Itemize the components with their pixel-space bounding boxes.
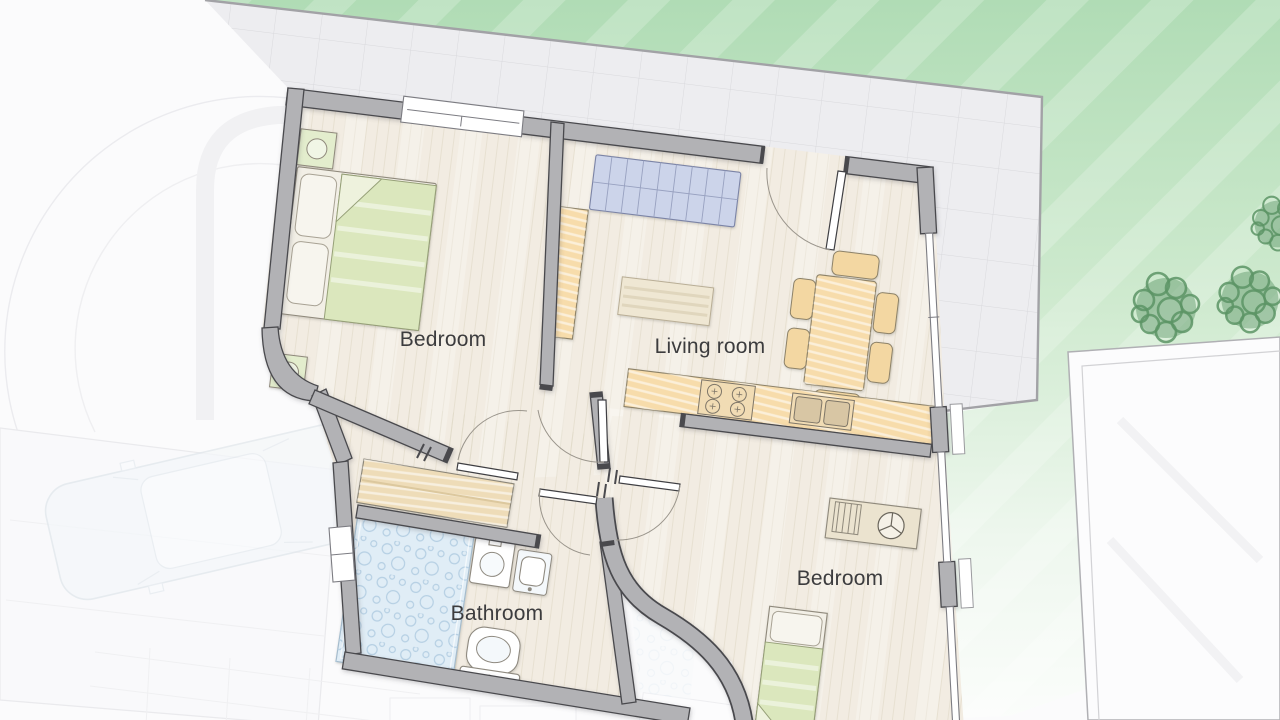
double-bed (280, 167, 437, 331)
room-label-bedroom-2: Bedroom (797, 567, 884, 590)
wall-right-block1 (917, 167, 937, 234)
window-sill (959, 559, 974, 609)
room-label-living-room: Living room (655, 335, 766, 358)
dining-chair (873, 292, 900, 334)
floor-plan: Bedroom Living room Bathroom Bedroom (0, 0, 1280, 720)
floor-plan-canvas: Bedroom Living room Bathroom Bedroom (0, 0, 1280, 720)
neighbor-terrace (1068, 337, 1280, 720)
room-label-bedroom-1: Bedroom (400, 328, 487, 351)
washbasin-right (512, 549, 552, 596)
dining-chair (831, 250, 880, 279)
wall-right-block3 (939, 561, 958, 607)
pillow (294, 173, 337, 239)
window-sill (950, 404, 965, 455)
washbasin-left (469, 537, 515, 588)
pillow (286, 241, 329, 307)
window-bathroom-left (329, 526, 355, 582)
stove (698, 380, 756, 420)
dining-chair (866, 342, 893, 384)
wall-right-block2 (930, 407, 949, 453)
room-label-bathroom: Bathroom (451, 602, 544, 625)
pillow (770, 611, 823, 647)
